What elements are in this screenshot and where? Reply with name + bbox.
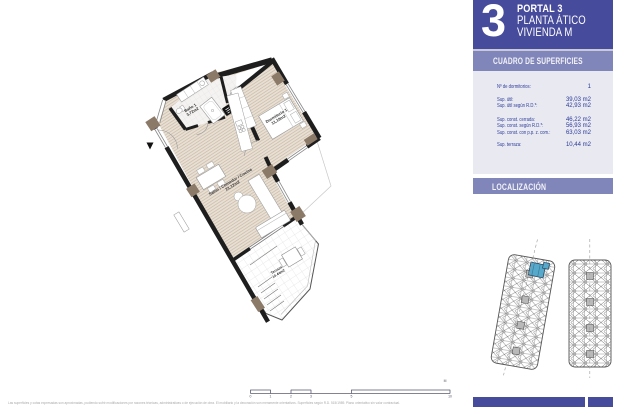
svg-text:Las superficies y cotas expres: Las superficies y cotas expresadas son a… xyxy=(8,401,400,405)
svg-text:M: M xyxy=(444,379,447,383)
svg-text:2: 2 xyxy=(290,394,292,398)
svg-text:5: 5 xyxy=(350,394,352,398)
svg-text:1: 1 xyxy=(270,394,272,398)
svg-text:10: 10 xyxy=(448,394,452,398)
svg-text:0: 0 xyxy=(250,394,252,398)
svg-text:3: 3 xyxy=(310,394,312,398)
